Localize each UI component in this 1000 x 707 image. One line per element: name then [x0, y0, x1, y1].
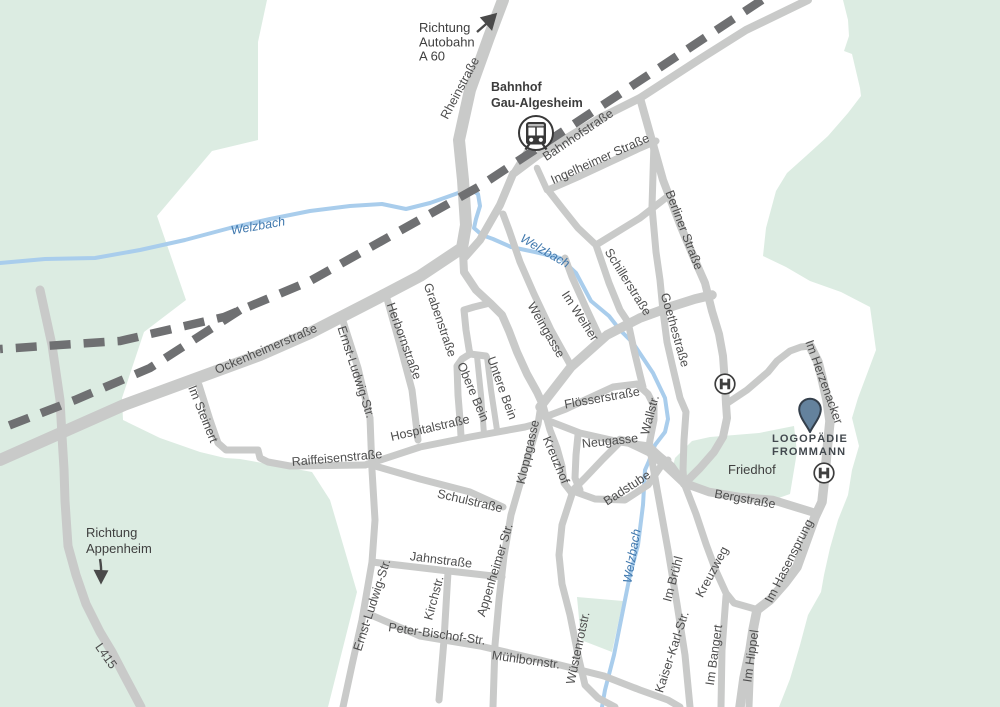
- svg-text:Bahnhof: Bahnhof: [491, 80, 543, 94]
- svg-text:Friedhof: Friedhof: [728, 462, 776, 477]
- svg-text:A 60: A 60: [419, 49, 445, 64]
- svg-text:Richtung: Richtung: [419, 20, 470, 35]
- svg-text:FROMMANN: FROMMANN: [772, 446, 846, 458]
- svg-text:LOGOPÄDIE: LOGOPÄDIE: [772, 432, 848, 445]
- svg-text:Richtung: Richtung: [86, 525, 137, 540]
- svg-text:Autobahn: Autobahn: [419, 34, 475, 49]
- svg-text:Appenheim: Appenheim: [86, 541, 152, 556]
- svg-text:Gau-Algesheim: Gau-Algesheim: [491, 96, 583, 110]
